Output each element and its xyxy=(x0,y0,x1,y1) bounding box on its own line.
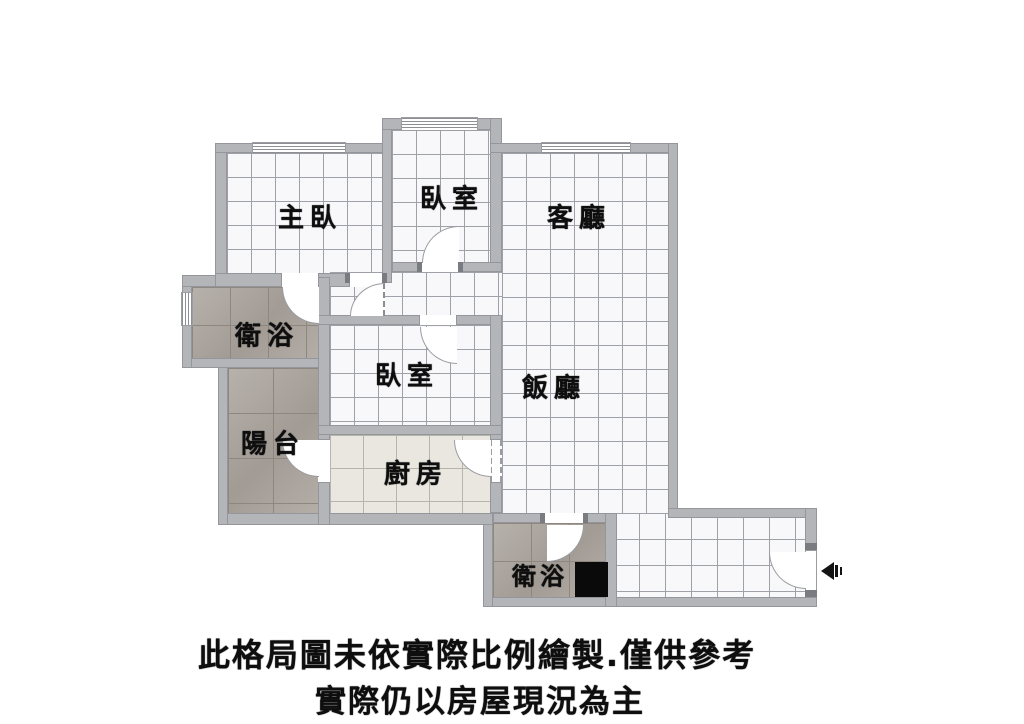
wall-corridor-top xyxy=(668,508,813,518)
room-label-master-bedroom: 主臥 xyxy=(278,198,342,235)
wall-bedroom-mid-top-a xyxy=(318,315,420,325)
room-label-balcony: 陽台 xyxy=(241,424,305,461)
wall-bathroom-guest-left xyxy=(483,513,493,607)
wall-bedroom-top-right xyxy=(490,118,502,272)
jamb-master-door-left xyxy=(345,273,350,283)
room-label-living-room: 客廳 xyxy=(547,198,611,235)
window-bathroom-main xyxy=(182,293,192,325)
wall-balcony-top xyxy=(182,358,330,368)
room-label-bathroom-main: 衛浴 xyxy=(235,316,299,353)
entrance-arrow-tail-1 xyxy=(835,565,838,577)
disclaimer-line-1: 此格局圖未依實際比例繪製.僅供參考 xyxy=(198,630,756,676)
wall-balcony-left xyxy=(218,363,228,525)
entrance-arrow-icon xyxy=(821,562,834,580)
wall-bedroom-top-left xyxy=(382,118,392,283)
opening-balcony-door xyxy=(318,440,330,482)
wall-left-master xyxy=(215,143,227,283)
room-label-bathroom-guest: 衛浴 xyxy=(512,557,568,592)
jamb-bathroom-guest-left xyxy=(540,513,545,523)
wall-kitchen-right-lower xyxy=(490,482,502,513)
wall-bedroom-mid-right xyxy=(490,315,502,440)
jamb-bedroom-top-right xyxy=(458,262,463,272)
wall-divider-lower xyxy=(318,482,330,525)
jamb-master-door-right xyxy=(382,273,387,283)
window-living-room xyxy=(542,143,630,153)
wall-right-main xyxy=(668,143,678,518)
room-label-kitchen: 廚房 xyxy=(384,454,448,491)
wall-bathroom-guest-top-a xyxy=(493,513,545,523)
opening-bedroom-top-door xyxy=(422,262,458,272)
opening-kitchen-door xyxy=(490,440,502,482)
opening-bathroom-main-door xyxy=(282,273,318,287)
jamb-entry-top xyxy=(805,543,817,550)
jamb-entry-bottom xyxy=(805,590,817,597)
wall-kitchen-top xyxy=(318,425,502,435)
entrance-arrow-tail-2 xyxy=(840,567,842,575)
shower-fixture-black-square xyxy=(575,562,608,597)
wall-master-bottom-a xyxy=(215,273,282,287)
room-label-dining-room: 飯廳 xyxy=(522,368,586,405)
opening-bathroom-guest-door xyxy=(545,513,583,523)
wall-divider-upper xyxy=(318,277,330,440)
disclaimer-line-2: 實際仍以房屋現況為主 xyxy=(315,676,645,721)
window-master-bedroom xyxy=(253,143,345,153)
jamb-bedroom-top-left xyxy=(417,262,422,272)
floor-plan-canvas: 主臥 臥室 客廳 衛浴 臥室 飯廳 陽台 廚房 衛浴 此格局圖未依實際比例繪製.… xyxy=(0,0,1024,724)
window-bedroom-top xyxy=(402,118,477,130)
wall-bottom-main xyxy=(218,513,493,525)
wall-bottom-right xyxy=(483,597,817,607)
room-label-bedroom-middle: 臥室 xyxy=(375,356,439,393)
wall-bedroom-top-bottom-b xyxy=(458,262,502,272)
opening-bedroom-mid-door xyxy=(420,315,456,325)
jamb-bathroom-guest-right xyxy=(583,513,588,523)
entry-door-leaf xyxy=(805,550,817,592)
room-label-bedroom-top: 臥室 xyxy=(420,179,484,216)
